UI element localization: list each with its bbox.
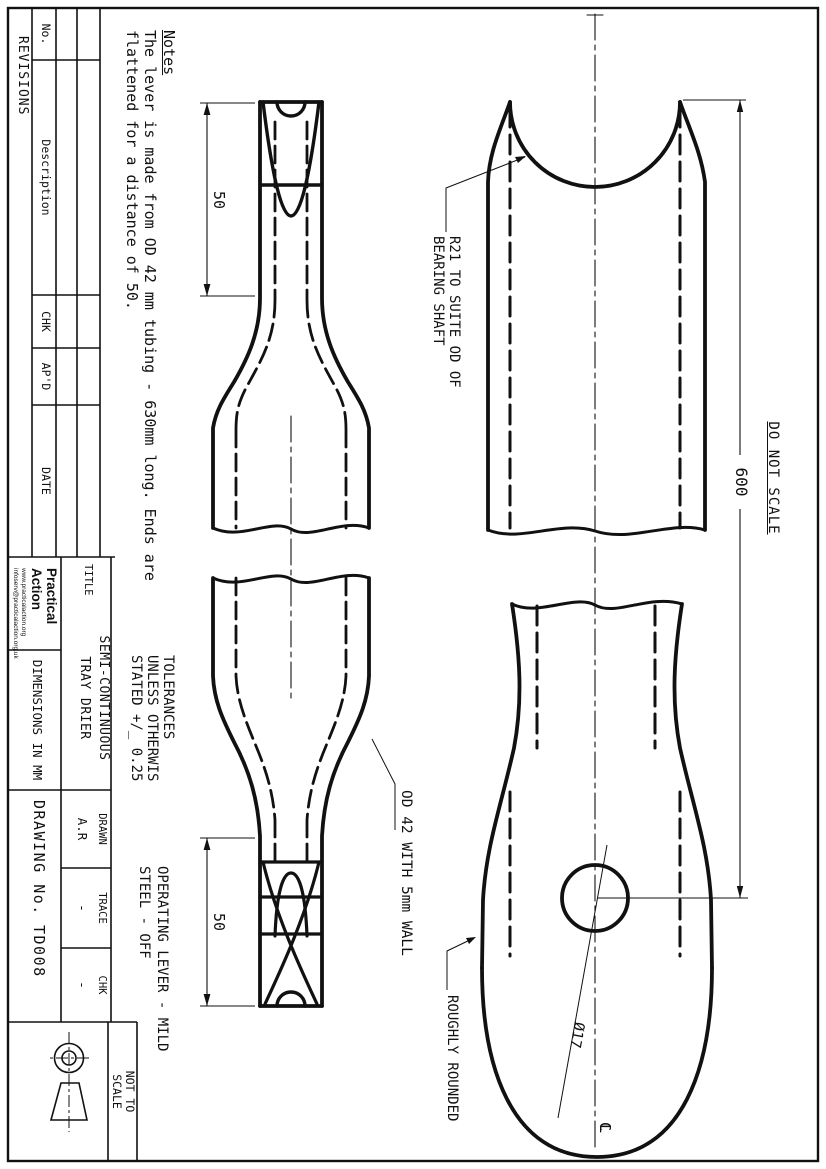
flatten-blend-arch [275,873,307,936]
logo-line1: Practical [43,568,58,624]
tolerances-line1: TOLERANCES [160,655,175,739]
title-block-lines [8,8,137,1161]
trace-label: TRACE [96,868,107,948]
rotated-landscape-sheet: DO NOT SCALE 600 50 50 R21 TO SUITE OD O… [0,0,826,1169]
end-notch [277,102,305,116]
projection-symbol-icon [49,1032,89,1132]
revisions-col-apd: AP'D [40,348,52,405]
logo-url1: www.practicalaction.org [19,568,27,636]
revisions-col-date: DATE [40,405,52,557]
plan-view [482,14,712,1157]
revisions-title: REVISIONS [15,36,29,115]
dim-600: 600 [732,455,749,509]
break-line [488,527,705,534]
roughly-rounded-note: ROUGHLY ROUNDED [444,995,459,1121]
dia17-label: Ø17 [566,1021,586,1050]
seat-notch-side [263,102,319,216]
drawing-no-value: TD008 [30,925,46,978]
dim-50-right: 50 [210,902,226,942]
drawing-no-label: DRAWING No. [30,800,46,916]
logo-line2: Action [28,568,43,610]
title-line2: TRAY DRIER [77,610,91,786]
dimensions-note: DIMENSIONS IN MM [31,650,44,790]
od42-leader [372,739,395,830]
material-note-line2: STEEL - OFF [136,866,151,959]
notes-heading: Notes [160,30,176,75]
centerline-symbol: CL [596,1122,612,1126]
do-not-scale-note: DO NOT SCALE [765,420,780,536]
logo-url2: infoserv@practicalaction.org.uk [11,568,19,659]
material-note-line1: OPERATING LEVER - MILD [154,866,169,1051]
nts-line2: SCALE [111,1022,123,1161]
drawn-value: A.R [76,790,89,868]
revisions-col-no: No. [40,8,52,60]
side-view [213,102,369,1006]
drawing-sheet-page: DO NOT SCALE 600 50 50 R21 TO SUITE OD O… [0,0,826,1169]
trace-value: - [76,868,89,948]
chk-label: CHK [96,948,107,1022]
title-line1: SEMI-CONTINUOUS [96,610,110,786]
nts-line1: NOT TO [124,1022,136,1161]
end-notch [277,992,305,1006]
title-label: TITLE [82,564,93,596]
notes-line1: The lever is made from OD 42 mm tubing -… [141,30,157,581]
revisions-col-chk: CHK [40,295,52,348]
tolerances-line2: UNLESS OTHERWIS [144,655,159,781]
plan-hidden-right [510,606,680,956]
roughly-rounded-leader [447,938,474,990]
dim-50-left: 50 [210,180,226,220]
r21-leader [446,157,525,232]
tolerances-line3: STATED +/_ 0.25 [128,655,143,781]
od42-note: OD 42 WITH 5mm WALL [398,790,413,956]
revisions-col-description: Description [40,60,52,295]
rounded-end-cap [482,968,712,1157]
dimension-arrows [204,100,744,1006]
r21-note-line1: R21 TO SUITE OD OF [446,236,461,388]
chk-value: - [76,948,89,1022]
r21-note-line2: BEARING SHAFT [430,236,445,346]
notes-line2: flattened for a distance of 50. [123,30,139,310]
drawn-label: DRAWN [96,790,107,868]
